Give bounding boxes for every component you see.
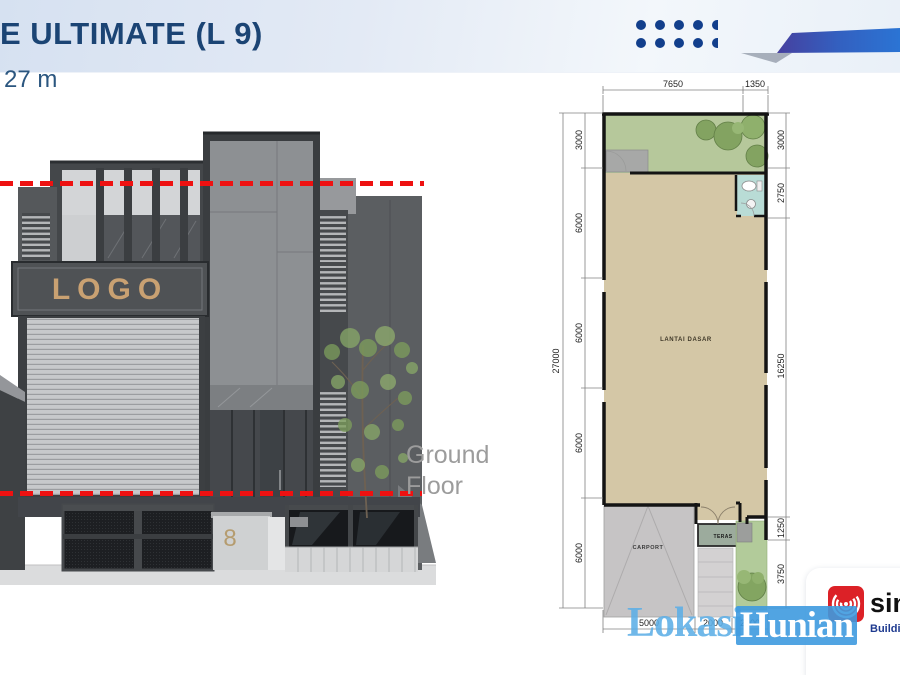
dim-right-1: 2750 (776, 183, 786, 203)
decor-dots (636, 20, 722, 48)
gate-pillar (213, 516, 270, 570)
logo-text: LOGO (52, 273, 168, 306)
ground-floor-label: Ground Floor (406, 440, 489, 502)
toilet-fixture (742, 181, 756, 191)
dot (636, 38, 646, 48)
sink-fixture (747, 200, 756, 209)
ground-floor-line2: Floor (406, 471, 489, 502)
dim-right-3: 1250 (776, 518, 786, 538)
room-label-main: LANTAI DASAR (660, 337, 712, 343)
building-elevation-render: LOGO 8 (0, 130, 440, 590)
house-number: 8 (223, 525, 236, 552)
fence-plinth (285, 547, 418, 572)
room-label-carport: CARPORT (633, 545, 664, 551)
dim-top-1: 1350 (745, 79, 765, 89)
dim-left-3: 6000 (574, 433, 584, 453)
dim-right-0: 3000 (776, 130, 786, 150)
dim-left-1: 6000 (574, 213, 584, 233)
dot (693, 38, 703, 48)
vendor-tagline: Buildin (870, 623, 900, 635)
decor-ribbon (740, 25, 900, 65)
dim-right-2: 16250 (776, 353, 786, 378)
slide-canvas: E ULTIMATE (L 9) 27 m (0, 0, 900, 675)
dot (674, 20, 684, 30)
level-line-ground (0, 491, 422, 496)
dim-left-0: 3000 (574, 130, 584, 150)
page-title: E ULTIMATE (L 9) (0, 16, 263, 52)
dim-right-4: 3750 (776, 564, 786, 584)
floor-plan: LANTAI DASAR CARPORT TERAS 7650 1350 2 (540, 78, 900, 640)
dot-half (712, 38, 718, 48)
dim-left-4: 6000 (574, 543, 584, 563)
dot (636, 20, 646, 30)
dot (655, 38, 665, 48)
level-line-upper (0, 181, 424, 186)
room-label-teras: TERAS (714, 534, 733, 540)
dot (693, 20, 703, 30)
ground-floor-line1: Ground (406, 440, 489, 471)
vendor-name: sin (870, 588, 900, 619)
dot (674, 38, 684, 48)
watermark-band: Hunian (736, 606, 857, 645)
watermark-lokasi: Lokasi (627, 599, 742, 647)
dim-top-0: 7650 (663, 79, 683, 89)
height-label: 27 m (4, 66, 57, 94)
dot (655, 20, 665, 30)
dot-half (712, 20, 718, 30)
rolling-shutter (27, 318, 199, 495)
dim-left-2: 6000 (574, 323, 584, 343)
plan-main-floor (604, 173, 767, 522)
dim-left-outer: 27000 (551, 348, 561, 373)
watermark-hunian: Hunian (740, 605, 853, 646)
